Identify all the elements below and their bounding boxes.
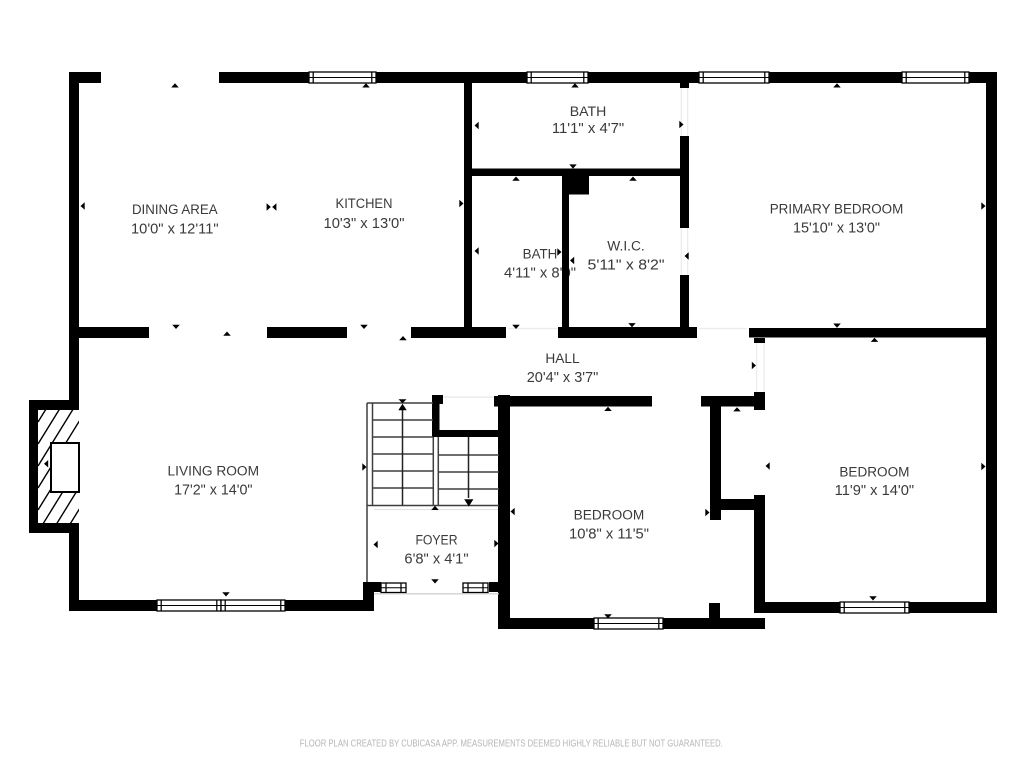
svg-text:HALL: HALL bbox=[545, 351, 580, 366]
svg-text:LIVING ROOM: LIVING ROOM bbox=[168, 464, 260, 479]
svg-text:FOYER: FOYER bbox=[415, 532, 457, 547]
svg-text:11'9" x 14'0": 11'9" x 14'0" bbox=[835, 483, 915, 499]
svg-text:BATH: BATH bbox=[523, 247, 558, 262]
svg-text:KITCHEN: KITCHEN bbox=[336, 196, 393, 211]
svg-text:BEDROOM: BEDROOM bbox=[839, 464, 909, 479]
svg-text:FLOOR PLAN CREATED BY CUBICASA: FLOOR PLAN CREATED BY CUBICASA APP. MEAS… bbox=[300, 738, 723, 750]
svg-text:15'10" x 13'0": 15'10" x 13'0" bbox=[793, 220, 880, 236]
svg-text:10'0" x 12'11": 10'0" x 12'11" bbox=[131, 221, 219, 237]
svg-text:BATH: BATH bbox=[570, 104, 607, 119]
svg-text:W.I.C.: W.I.C. bbox=[607, 238, 644, 253]
svg-text:5'11" x 8'2": 5'11" x 8'2" bbox=[588, 257, 665, 273]
svg-text:PRIMARY BEDROOM: PRIMARY BEDROOM bbox=[770, 202, 904, 217]
svg-text:20'4" x 3'7": 20'4" x 3'7" bbox=[527, 370, 599, 386]
svg-text:10'8" x 11'5": 10'8" x 11'5" bbox=[569, 527, 649, 543]
svg-text:DINING AREA: DINING AREA bbox=[132, 202, 218, 217]
svg-text:11'1" x 4'7": 11'1" x 4'7" bbox=[552, 121, 624, 137]
svg-text:6'8" x 4'1": 6'8" x 4'1" bbox=[404, 552, 468, 568]
svg-text:17'2" x 14'0": 17'2" x 14'0" bbox=[174, 482, 252, 498]
svg-text:10'3" x 13'0": 10'3" x 13'0" bbox=[324, 216, 405, 232]
svg-text:BEDROOM: BEDROOM bbox=[574, 507, 645, 522]
